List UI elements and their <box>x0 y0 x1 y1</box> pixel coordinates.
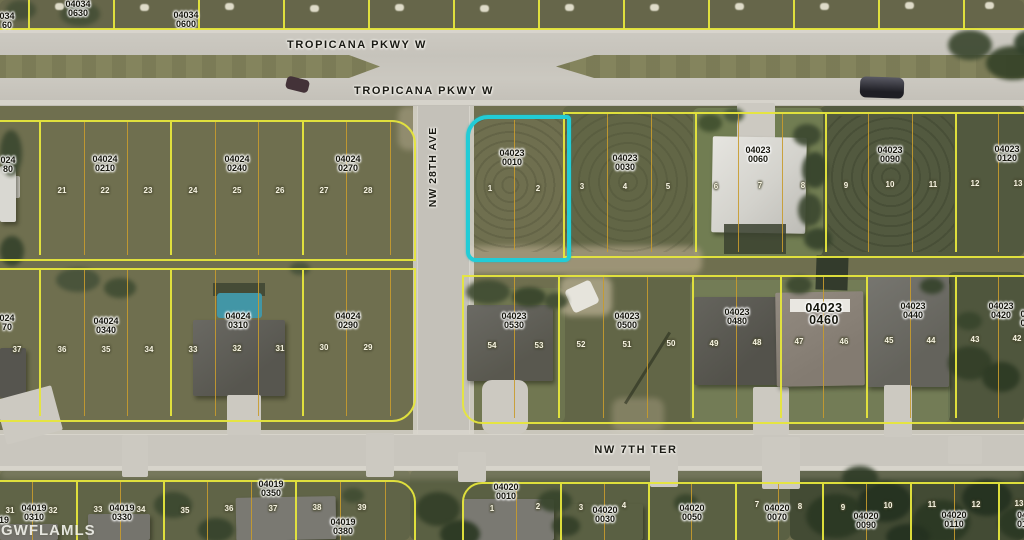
parcel-line <box>283 0 285 29</box>
map-feature: 0310 <box>225 321 250 330</box>
parcel-id-label: 040340600 <box>173 11 198 29</box>
parcel-line <box>866 277 868 418</box>
lot-number: 32 <box>49 506 58 515</box>
parcel-line <box>603 277 604 418</box>
driveway <box>122 435 148 477</box>
marker-dot <box>905 2 914 9</box>
parcel-line <box>868 114 869 252</box>
parcel-id-label: 040240240 <box>224 155 249 173</box>
parcel-line <box>390 270 391 416</box>
parcel-line <box>170 270 172 416</box>
parcel-id-label: 040240210 <box>92 155 117 173</box>
parcel-id-label: 03460 <box>0 12 15 30</box>
parcel-id-label: 040190330 <box>109 504 134 522</box>
map-feature: 70 <box>0 323 15 332</box>
parcel-id-label: 02470 <box>0 314 15 332</box>
map-feature: 0090 <box>877 155 902 164</box>
parcel-line <box>215 122 216 255</box>
map-feature: 0380 <box>330 527 355 536</box>
car-on-road <box>860 76 905 99</box>
lot-number: 5 <box>666 182 670 191</box>
lot-number: 7 <box>755 500 759 509</box>
marker-dot <box>985 2 994 9</box>
marker-dot <box>395 4 404 11</box>
marker-dot <box>735 3 744 10</box>
parcel-line <box>368 0 370 29</box>
parcel-id-label: 040200110 <box>941 511 966 529</box>
map-feature: 0030 <box>592 515 617 524</box>
lot-number: 33 <box>189 345 198 354</box>
parcel-line <box>736 277 737 418</box>
parcel-line <box>607 114 608 252</box>
parcel-line <box>453 0 455 29</box>
map-feature: 0060 <box>745 155 770 164</box>
parcel-id-label: 040200050 <box>679 504 704 522</box>
map-feature: 0500 <box>614 321 639 330</box>
map-feature: 0530 <box>501 321 526 330</box>
map-feature: 0 <box>1020 319 1024 328</box>
map-feature: 0030 <box>612 163 637 172</box>
parcel-id-label: 040230030 <box>612 154 637 172</box>
map-feature: 0310 <box>21 513 46 522</box>
lot-number: 36 <box>225 504 234 513</box>
highlighted-parcel-outline[interactable] <box>466 115 571 262</box>
lot-number: 4 <box>623 182 627 191</box>
map-feature: 0350 <box>258 489 283 498</box>
tree <box>948 30 992 60</box>
lot-number: 37 <box>13 345 22 354</box>
marker-dot <box>565 4 574 11</box>
lot-number: 9 <box>841 503 845 512</box>
parcel-line <box>390 122 391 255</box>
lot-number: 35 <box>102 345 111 354</box>
parcel-line <box>302 270 304 416</box>
marker-dot <box>310 5 319 12</box>
map-feature: 0340 <box>93 326 118 335</box>
map-feature: 0290 <box>335 321 360 330</box>
lot-number: 28 <box>364 186 373 195</box>
parcel-line <box>39 270 41 416</box>
lot-number: 12 <box>971 179 980 188</box>
lot-number: 24 <box>189 186 198 195</box>
map-feature: 0070 <box>764 513 789 522</box>
parcel-line <box>302 122 304 255</box>
parcel-id-label: 040200010 <box>493 483 518 501</box>
map-feature: 0630 <box>65 9 90 18</box>
parcel-id-label: 040230010 <box>499 149 524 167</box>
lot-number: 3 <box>580 182 584 191</box>
parcel-line <box>998 277 999 418</box>
parcel-id-label: 040240270 <box>335 155 360 173</box>
parcel-id-label: 040240310 <box>225 312 250 330</box>
map-feature: 0120 <box>994 154 1019 163</box>
lot-number: 45 <box>885 336 894 345</box>
parcel-line <box>558 277 560 418</box>
lot-number: 38 <box>313 503 322 512</box>
street-label-tropicana-upper: TROPICANA PKWY W <box>287 39 427 51</box>
parcel-line <box>295 482 297 540</box>
parcel-line <box>910 484 912 540</box>
parcel-line <box>878 0 880 29</box>
parcel-line <box>346 270 347 416</box>
lot-number: 43 <box>971 335 980 344</box>
lot-number: 53 <box>535 341 544 350</box>
parcel-id-label: 040190350 <box>258 480 283 498</box>
map-feature: 80 <box>0 165 15 174</box>
lot-number: 33 <box>94 505 103 514</box>
parcel-line <box>207 482 208 540</box>
lot-number: 26 <box>276 186 285 195</box>
lot-number: 46 <box>840 337 849 346</box>
parcel-line <box>560 484 562 540</box>
parcel-line <box>170 122 172 255</box>
lot-number: 39 <box>358 503 367 512</box>
lot-number: 7 <box>758 181 762 190</box>
parcel-line <box>84 122 85 255</box>
street-label-nw-28th-ave: NW 28TH AVE <box>427 127 439 207</box>
tropicana-median-east <box>556 55 1024 78</box>
map-feature: 0110 <box>941 520 966 529</box>
parcel-line <box>695 114 697 252</box>
lot-number: 34 <box>145 345 154 354</box>
lot-number: 35 <box>181 506 190 515</box>
lot-number: 31 <box>276 344 285 353</box>
parcel-line <box>955 277 957 418</box>
driveway <box>366 433 394 477</box>
parcel-id-label: 040230440 <box>900 302 925 320</box>
marker-dot <box>225 3 234 10</box>
marker-dot <box>650 4 659 11</box>
parcel-line <box>793 0 795 29</box>
parcel-line <box>912 114 913 252</box>
block-outline <box>462 275 1024 424</box>
parcel-line <box>782 114 783 252</box>
parcel-id-label: 040230120 <box>994 145 1019 163</box>
map-feature: 0480 <box>724 317 749 326</box>
lot-number: 44 <box>927 336 936 345</box>
map-feature: 0050 <box>679 513 704 522</box>
parcel-line <box>955 114 957 252</box>
map-feature <box>0 0 1024 29</box>
map-feature: 0600 <box>173 20 198 29</box>
map-feature: 0460 <box>805 314 842 326</box>
parcel-line <box>910 277 911 418</box>
lot-number: 8 <box>798 502 802 511</box>
parcel-line <box>163 482 165 540</box>
parcel-id-label: 040230060 <box>745 146 770 164</box>
parcel-id-label: 040200090 <box>853 512 878 530</box>
parcel-id-label: 040190310 <box>21 504 46 522</box>
map-feature <box>0 100 1024 105</box>
parcel-line <box>825 114 827 252</box>
parcel-line <box>127 270 128 416</box>
driveway <box>948 436 982 464</box>
lot-number: 36 <box>58 345 67 354</box>
map-feature: 01 <box>1017 520 1024 529</box>
lot-number: 13 <box>1015 499 1024 508</box>
parcel-line <box>84 270 85 416</box>
lot-number: 4 <box>622 501 626 510</box>
lot-number: 47 <box>795 337 804 346</box>
lot-number: 42 <box>1013 334 1022 343</box>
lot-number: 23 <box>144 186 153 195</box>
marker-dot <box>55 3 64 10</box>
lot-number: 49 <box>710 339 719 348</box>
parcel-line <box>258 270 259 416</box>
parcel-line <box>651 114 652 252</box>
parcel-line <box>346 122 347 255</box>
parcel-line <box>780 277 782 418</box>
lot-number: 13 <box>1014 179 1023 188</box>
parcel-line <box>963 0 965 29</box>
block-outline <box>462 482 1024 540</box>
parcel-line <box>623 0 625 29</box>
parcel-id-label: 040230460 <box>805 302 842 326</box>
lot-number: 2 <box>536 184 540 193</box>
lot-number: 30 <box>320 343 329 352</box>
parcel-id-label: 040200070 <box>764 504 789 522</box>
parcel-id-label: 040240340 <box>93 317 118 335</box>
map-feature: 0420 <box>988 311 1013 320</box>
parcel-line <box>738 114 739 252</box>
parcel-id-label: 040200030 <box>592 506 617 524</box>
parcel-line <box>998 114 999 252</box>
lot-number: 48 <box>753 338 762 347</box>
parcel-id-label: 02480 <box>0 156 15 174</box>
lot-number: 10 <box>884 501 893 510</box>
lot-number: 8 <box>801 181 805 190</box>
parcel-line <box>215 270 216 416</box>
lot-number: 10 <box>886 180 895 189</box>
map-feature: 0210 <box>92 164 117 173</box>
lot-number: 52 <box>577 340 586 349</box>
parcel-id-label: 040340630 <box>65 0 90 18</box>
map-feature: 0270 <box>335 164 360 173</box>
parcel-line <box>648 484 650 540</box>
lot-number: 37 <box>269 504 278 513</box>
tropicana-median-west <box>0 55 380 78</box>
parcel-line <box>647 277 648 418</box>
map-feature: 60 <box>0 21 15 30</box>
parcel-line <box>39 122 41 255</box>
parcel-id-label: 040230090 <box>877 146 902 164</box>
road-nw-7th-ter <box>0 434 1024 470</box>
lot-number: 50 <box>667 339 676 348</box>
marker-dot <box>820 3 829 10</box>
parcel-id-label: 040230480 <box>724 308 749 326</box>
parcel-line <box>823 277 824 418</box>
parcel-line <box>28 0 30 29</box>
mls-watermark: GWFLAMLS <box>1 522 96 539</box>
marker-dot <box>140 4 149 11</box>
parcel-line <box>735 484 737 540</box>
lot-number: 1 <box>490 504 494 513</box>
parcel-line <box>0 28 1024 30</box>
lot-number: 31 <box>6 506 15 515</box>
lot-number: 51 <box>623 340 632 349</box>
parcel-id-label: 040230500 <box>614 312 639 330</box>
map-feature: 0010 <box>499 158 524 167</box>
map-feature: 0330 <box>109 513 134 522</box>
driveway <box>458 452 486 482</box>
lot-number: 6 <box>714 182 718 191</box>
lot-number: 11 <box>928 500 936 509</box>
parcel-line <box>113 0 115 29</box>
parcel-line <box>251 482 252 540</box>
parcel-line <box>708 0 710 29</box>
lot-number: 27 <box>320 186 329 195</box>
street-label-nw-7th-ter: NW 7TH TER <box>594 444 677 456</box>
lot-number: 21 <box>58 186 67 195</box>
lot-number: 12 <box>972 500 981 509</box>
lot-number: 29 <box>364 343 373 352</box>
parcel-line <box>692 277 694 418</box>
lot-number: 34 <box>137 505 146 514</box>
parcel-id-label: 00 <box>1020 310 1024 328</box>
parcel-id-label: 040230530 <box>501 312 526 330</box>
parcel-line <box>514 277 515 418</box>
parcel-id-label: 040230420 <box>988 302 1013 320</box>
lot-number: 22 <box>101 186 110 195</box>
lot-number: 1 <box>488 184 492 193</box>
parcel-id-label: 040240290 <box>335 312 360 330</box>
lot-number: 11 <box>929 180 937 189</box>
lot-number: 25 <box>233 186 242 195</box>
lot-number: 54 <box>488 341 497 350</box>
street-label-tropicana-lower: TROPICANA PKWY W <box>354 85 494 97</box>
map-feature: 0010 <box>493 492 518 501</box>
lot-number: 2 <box>536 502 540 511</box>
parcel-line <box>127 122 128 255</box>
map-feature: 0440 <box>900 311 925 320</box>
lot-number: 9 <box>844 181 848 190</box>
parcel-line <box>822 484 824 540</box>
aerial-parcel-map[interactable]: 040340630 040340600 03460 02480 04024021… <box>0 0 1024 540</box>
parcel-line <box>258 122 259 255</box>
parcel-line <box>538 0 540 29</box>
parcel-line <box>385 482 386 540</box>
parcel-line <box>998 484 1000 540</box>
map-feature: 0240 <box>224 164 249 173</box>
marker-dot <box>480 5 489 12</box>
parcel-id-label: 040190380 <box>330 518 355 536</box>
map-feature: 0090 <box>853 521 878 530</box>
parcel-id-label: 0401 <box>1017 511 1024 529</box>
lot-number: 3 <box>579 503 583 512</box>
lot-number: 32 <box>233 344 242 353</box>
